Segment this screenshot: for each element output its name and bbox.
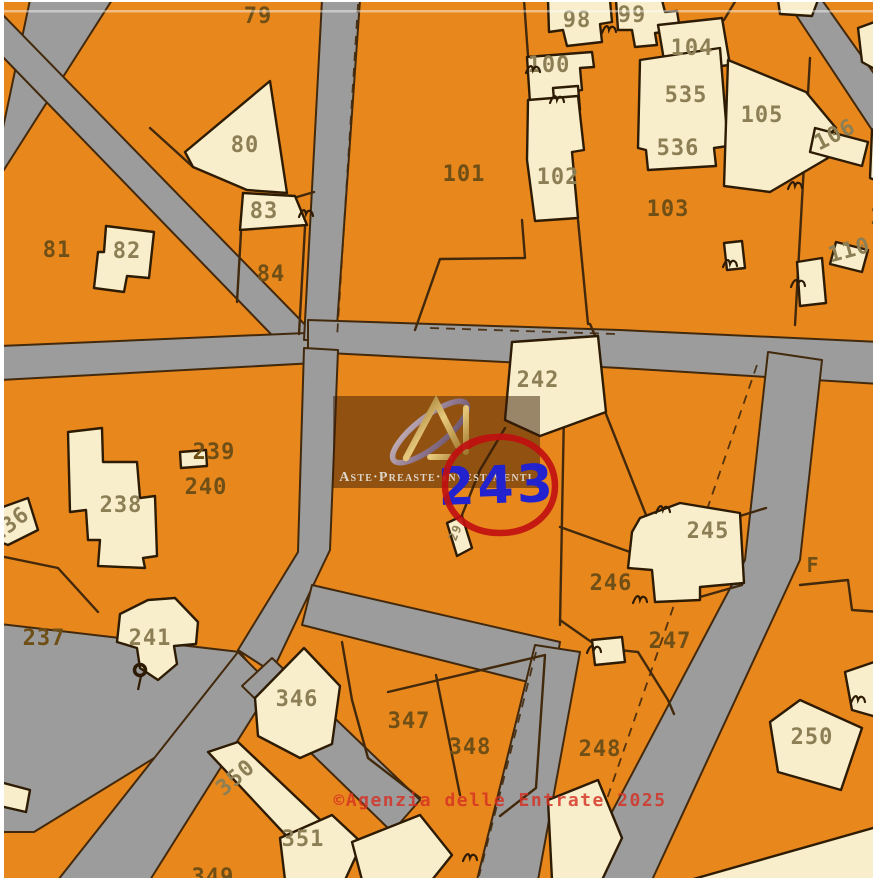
parcel-label-536: 536: [657, 136, 700, 161]
parcel-label-347: 347: [388, 709, 431, 734]
parcel-label-237: 237: [23, 626, 66, 651]
parcel-label-99: 99: [618, 3, 647, 28]
parcel-label-247: 247: [649, 629, 692, 654]
bldg-right-2: [797, 258, 826, 306]
cadastral-map: 7980818283849899100101102103104105106110…: [0, 0, 880, 880]
parcel-label-241: 241: [129, 626, 172, 651]
parcel-label-349: 349: [192, 865, 235, 880]
parcel-label-83: 83: [250, 199, 279, 224]
frame-right: [873, 0, 880, 880]
bldg-247-annex: [592, 637, 625, 665]
parcel-label-84: 84: [257, 262, 286, 287]
parcel-label-104: 104: [671, 36, 714, 61]
parcel-label-351: 351: [282, 827, 325, 852]
bldg-top-1: [778, 0, 818, 16]
parcel-label-82: 82: [113, 239, 142, 264]
parcel-label-246: 246: [590, 571, 633, 596]
parcel-label-101: 101: [443, 162, 486, 187]
parcel-label-105: 105: [741, 103, 784, 128]
parcel-label-239: 239: [193, 440, 236, 465]
parcel-label-F: F: [806, 553, 819, 577]
parcel-label-102: 102: [537, 165, 580, 190]
parcel-label-81: 81: [43, 238, 72, 263]
parcel-label-100: 100: [528, 53, 571, 78]
parcel-label-79: 79: [244, 4, 273, 29]
parcel-label-348: 348: [449, 735, 492, 760]
parcel-label-250: 250: [791, 725, 834, 750]
bldg-103-small: [724, 241, 745, 270]
frame-left: [0, 0, 4, 880]
map-canvas: 7980818283849899100101102103104105106110…: [0, 0, 880, 880]
copyright-text: ©Agenzia delle Entrate 2025: [333, 790, 666, 811]
highlighted-parcel-number: 243: [437, 454, 557, 518]
parcel-label-248: 248: [579, 737, 622, 762]
parcel-label-245: 245: [687, 519, 730, 544]
parcel-label-240: 240: [185, 475, 228, 500]
parcel-label-80: 80: [231, 133, 260, 158]
parcel-label-346: 346: [276, 687, 319, 712]
scan-artifact-line: [0, 10, 880, 13]
parcel-label-238: 238: [100, 493, 143, 518]
parcel-label-103: 103: [647, 197, 690, 222]
frame-top: [0, 0, 880, 2]
parcel-label-242: 242: [517, 368, 560, 393]
parcel-label-535: 535: [665, 83, 708, 108]
